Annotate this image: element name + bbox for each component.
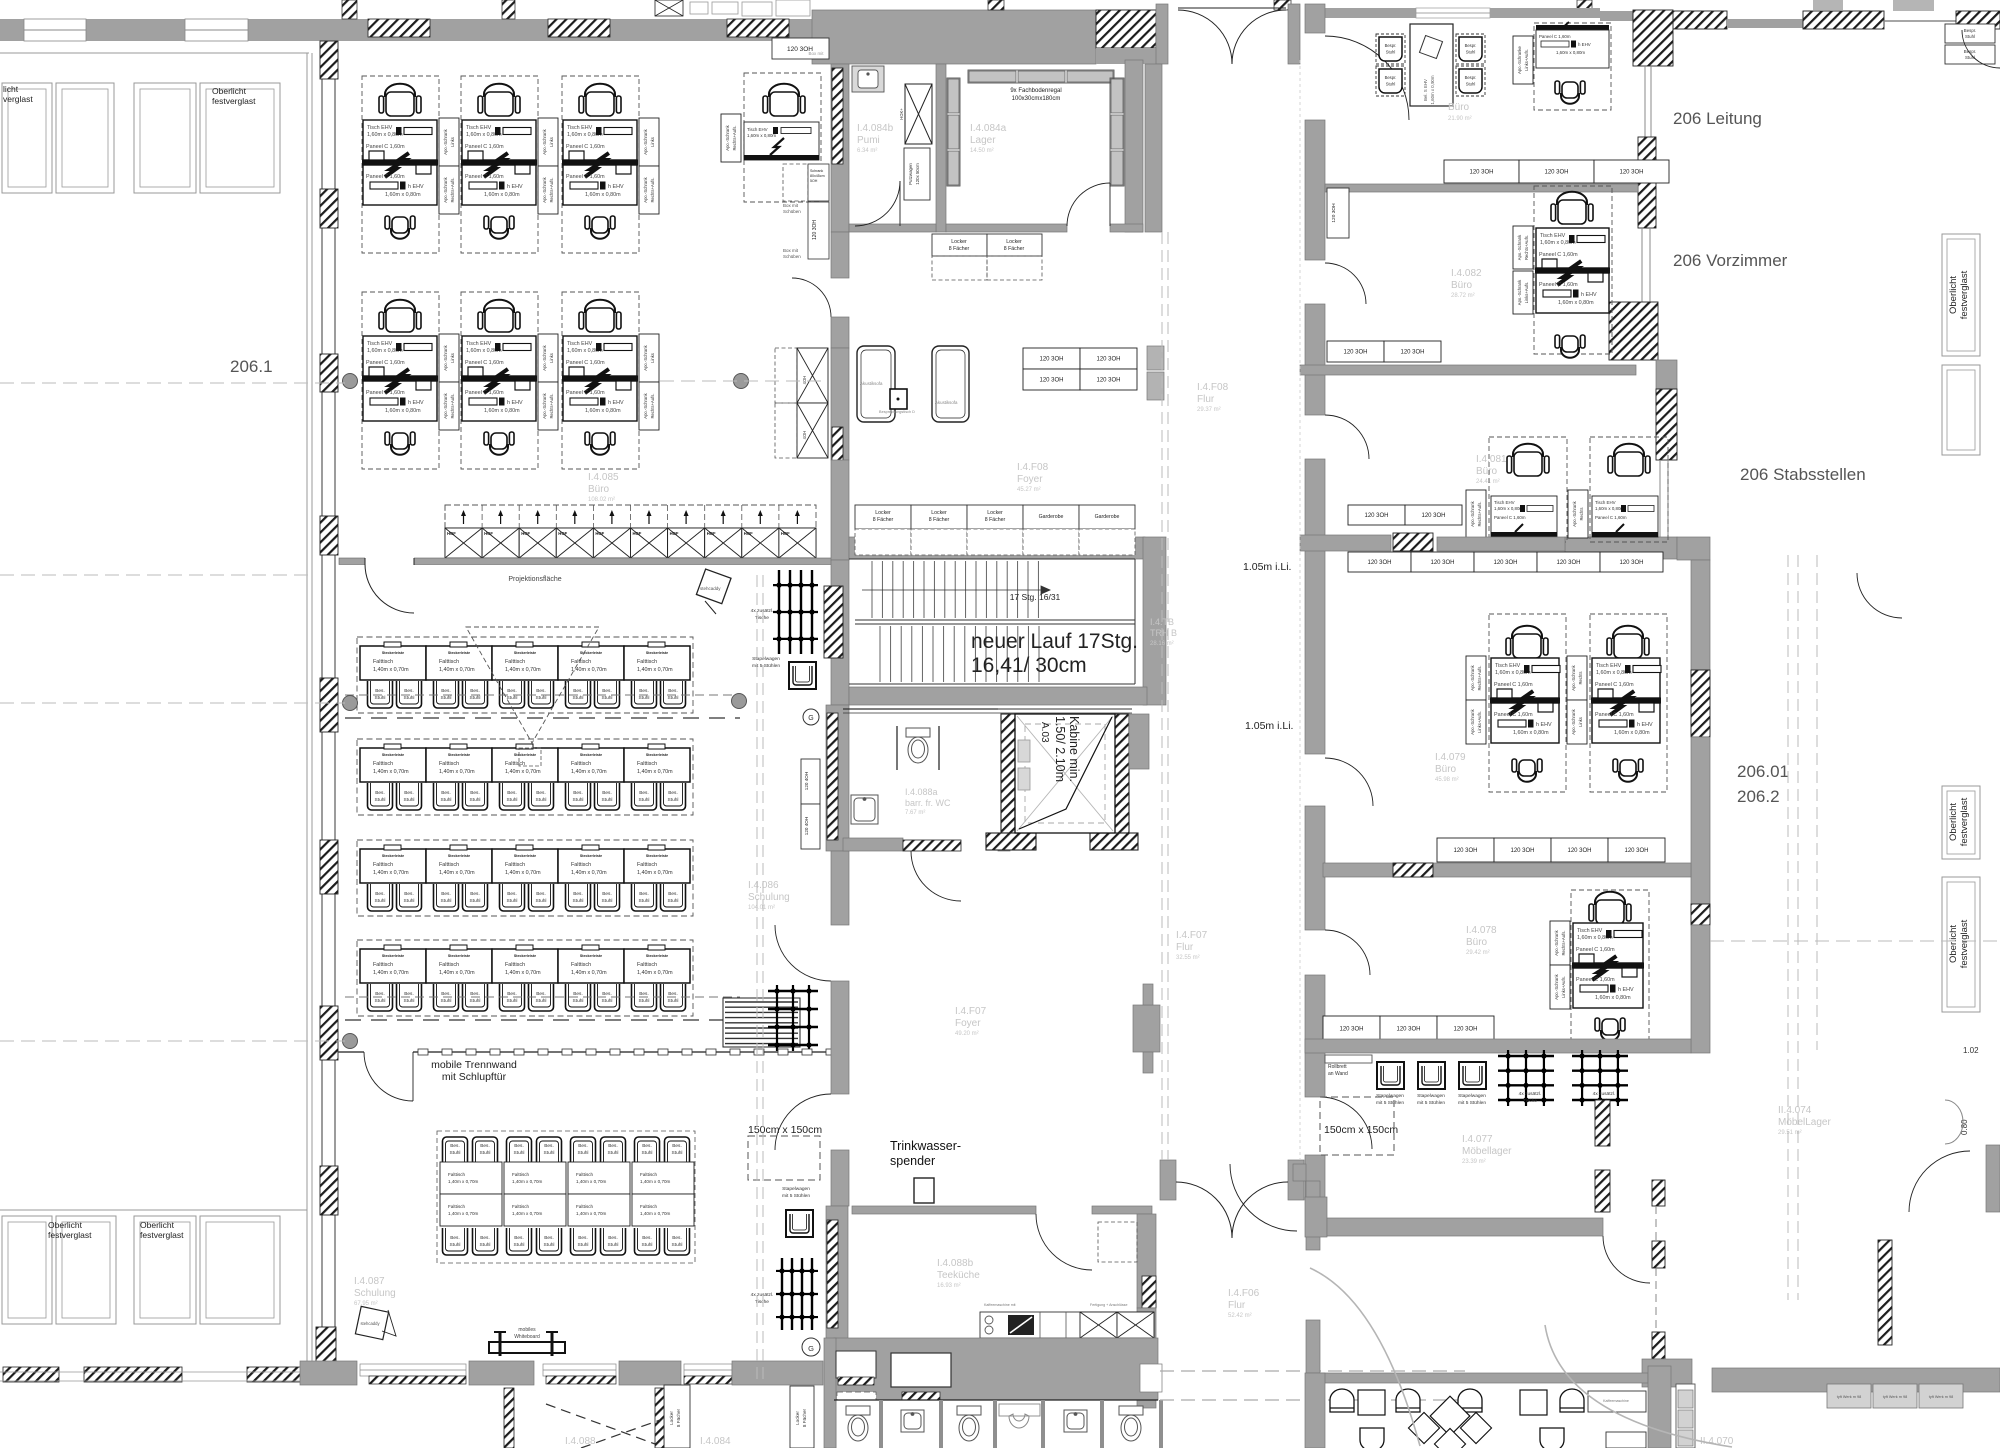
svg-text:Stuhl: Stuhl xyxy=(441,797,452,803)
svg-text:Stuhl: Stuhl xyxy=(672,1242,683,1248)
svg-text:Stuhl: Stuhl xyxy=(507,898,518,904)
svg-text:Akustiksofa: Akustiksofa xyxy=(860,381,883,386)
svg-text:Paneel C 1,60m: Paneel C 1,60m xyxy=(366,144,405,150)
svg-text:Stuhl: Stuhl xyxy=(536,695,547,701)
svg-text:Falttisch: Falttisch xyxy=(439,862,459,868)
svg-text:Apo.-Schrank: Apo.-Schrank xyxy=(1571,664,1576,690)
svg-text:mit 5 Stühlen: mit 5 Stühlen xyxy=(1376,1100,1404,1106)
svg-text:1,40m x 0,70m: 1,40m x 0,70m xyxy=(576,1179,607,1184)
svg-text:6.34 m²: 6.34 m² xyxy=(857,148,877,154)
svg-text:206 Leitung: 206 Leitung xyxy=(1673,109,1762,128)
svg-text:1,40m x 0,70m: 1,40m x 0,70m xyxy=(439,667,475,673)
svg-text:Rechts+Aufs.: Rechts+Aufs. xyxy=(1477,501,1482,526)
svg-text:Möbellager: Möbellager xyxy=(1462,1146,1512,1157)
svg-text:108.02 m²: 108.02 m² xyxy=(588,497,615,503)
svg-text:1.05m i.Li.: 1.05m i.Li. xyxy=(1245,720,1293,732)
svg-text:Links: Links xyxy=(1578,717,1583,727)
svg-text:Falttisch: Falttisch xyxy=(640,1204,658,1209)
svg-text:Steckerleiste: Steckerleiste xyxy=(580,854,602,858)
svg-text:8 Fächer: 8 Fächer xyxy=(929,517,950,523)
svg-text:h EHV: h EHV xyxy=(1618,987,1634,993)
svg-text:Bes.: Bes. xyxy=(544,1235,554,1241)
svg-text:120 3OH: 120 3OH xyxy=(1331,203,1337,223)
svg-text:120 3OH: 120 3OH xyxy=(1400,350,1424,356)
svg-text:28.72 m²: 28.72 m² xyxy=(1451,293,1475,299)
svg-text:Steckerleiste: Steckerleiste xyxy=(580,753,602,757)
svg-text:Stuhl: Stuhl xyxy=(441,998,452,1004)
svg-text:Falttisch: Falttisch xyxy=(637,862,657,868)
svg-text:Paneel C 1,60m: Paneel C 1,60m xyxy=(1576,947,1615,953)
svg-text:HOK+: HOK+ xyxy=(899,108,904,120)
svg-text:Stuhl: Stuhl xyxy=(480,1150,491,1156)
svg-text:Apo.-Schrank: Apo.-Schrank xyxy=(443,128,448,154)
svg-text:Flur: Flur xyxy=(1228,1300,1246,1311)
svg-text:Paneel C 1,60m: Paneel C 1,60m xyxy=(1595,515,1627,520)
svg-text:I.4.087: I.4.087 xyxy=(354,1276,385,1287)
svg-text:24.41 m²: 24.41 m² xyxy=(1476,479,1500,485)
svg-text:Rechts+Aufs.: Rechts+Aufs. xyxy=(549,177,554,202)
svg-text:stehcaddy: stehcaddy xyxy=(360,1321,380,1326)
svg-text:1,40m x 0,70m: 1,40m x 0,70m xyxy=(505,769,541,775)
svg-text:Rechts: Rechts xyxy=(1579,507,1584,520)
svg-text:Stuhl: Stuhl xyxy=(639,695,650,701)
svg-text:Stuhl: Stuhl xyxy=(507,797,518,803)
svg-text:1,40m x 0,70m: 1,40m x 0,70m xyxy=(576,1211,607,1216)
svg-text:Oberlicht: Oberlicht xyxy=(212,86,247,96)
svg-text:Bes.: Bes. xyxy=(668,891,678,897)
svg-text:49.20 m²: 49.20 m² xyxy=(955,1031,979,1037)
svg-text:Bes.: Bes. xyxy=(480,1143,490,1149)
svg-text:Apo.-Schrank: Apo.-Schrank xyxy=(1517,234,1522,260)
svg-text:Falttisch: Falttisch xyxy=(640,1172,658,1177)
svg-text:Besprechungstisch D: Besprechungstisch D xyxy=(879,410,915,414)
svg-text:4OH: 4OH xyxy=(802,431,807,440)
svg-text:Bes.: Bes. xyxy=(578,1143,588,1149)
svg-text:h EHV: h EHV xyxy=(507,400,523,406)
svg-text:Stuhl: Stuhl xyxy=(578,1242,589,1248)
svg-text:120 3OH: 120 3OH xyxy=(1421,513,1445,519)
svg-text:I.4.088b: I.4.088b xyxy=(937,1258,974,1269)
svg-text:1,40m x 0,70m: 1,40m x 0,70m xyxy=(439,870,475,876)
svg-text:Apo.-Schrank: Apo.-Schrank xyxy=(1470,664,1475,690)
svg-text:Bes.: Bes. xyxy=(672,1235,682,1241)
svg-text:Paneel C 1,60m: Paneel C 1,60m xyxy=(566,174,605,180)
svg-text:Stuhl: Stuhl xyxy=(375,898,386,904)
svg-text:Lager: Lager xyxy=(970,135,996,146)
svg-text:120 3OH: 120 3OH xyxy=(1096,378,1120,384)
svg-text:Pumi: Pumi xyxy=(857,135,880,146)
svg-text:Links: Links xyxy=(450,353,455,363)
svg-text:Rechts+Aufs.: Rechts+Aufs. xyxy=(1524,235,1529,260)
svg-text:Steckerleiste: Steckerleiste xyxy=(646,854,668,858)
svg-text:45.27 m²: 45.27 m² xyxy=(1017,487,1041,493)
svg-text:Tisch EHV: Tisch EHV xyxy=(1540,233,1566,239)
svg-text:1,40m x 0,70m: 1,40m x 0,70m xyxy=(571,667,607,673)
svg-text:Schulung: Schulung xyxy=(748,892,790,903)
svg-text:8 Fächer: 8 Fächer xyxy=(676,1408,681,1427)
svg-text:Bes.: Bes. xyxy=(441,891,451,897)
svg-text:Apo.-Schrank: Apo.-Schrank xyxy=(542,128,547,154)
svg-text:Falttisch: Falttisch xyxy=(637,761,657,767)
svg-text:I.4.F06: I.4.F06 xyxy=(1228,1288,1260,1299)
svg-text:Bes.: Bes. xyxy=(470,688,480,694)
svg-text:Stuhl: Stuhl xyxy=(639,898,650,904)
svg-text:120 3OH: 120 3OH xyxy=(1039,357,1063,363)
svg-text:1,60m x 0,80m: 1,60m x 0,80m xyxy=(585,192,621,198)
svg-text:Garderobe: Garderobe xyxy=(1039,514,1064,520)
svg-text:festverglast: festverglast xyxy=(48,1230,92,1240)
svg-text:h EHV: h EHV xyxy=(1536,722,1552,728)
svg-text:Stuhl: Stuhl xyxy=(668,797,679,803)
svg-text:Falttisch: Falttisch xyxy=(448,1204,466,1209)
svg-text:Falttisch: Falttisch xyxy=(448,1172,466,1177)
svg-text:Stuhl: Stuhl xyxy=(536,998,547,1004)
svg-text:8 Fächer: 8 Fächer xyxy=(1004,246,1025,252)
svg-text:h EHV: h EHV xyxy=(1578,42,1591,47)
svg-text:mobiles: mobiles xyxy=(518,1327,536,1333)
svg-text:II.4.074: II.4.074 xyxy=(1778,1105,1812,1116)
svg-text:120 3OH: 120 3OH xyxy=(1510,848,1534,854)
svg-text:Bes.: Bes. xyxy=(441,991,451,997)
svg-text:Büro: Büro xyxy=(1476,466,1498,477)
svg-text:Falttisch: Falttisch xyxy=(576,1204,594,1209)
svg-text:Steckerleiste: Steckerleiste xyxy=(514,954,536,958)
svg-text:1,60m x 0,80m: 1,60m x 0,80m xyxy=(385,408,421,414)
svg-text:1,40m x 0,70m: 1,40m x 0,70m xyxy=(571,970,607,976)
svg-text:Bes.: Bes. xyxy=(404,790,414,796)
svg-text:Büro: Büro xyxy=(588,484,610,495)
svg-text:Tisch EHV: Tisch EHV xyxy=(1495,663,1521,669)
svg-text:Steckerleiste: Steckerleiste xyxy=(646,651,668,655)
svg-text:Stuhl: Stuhl xyxy=(639,797,650,803)
svg-text:Garderobe: Garderobe xyxy=(1095,514,1120,520)
svg-text:Tisch EHV: Tisch EHV xyxy=(466,341,492,347)
svg-text:HOF: HOF xyxy=(744,531,753,536)
svg-text:Kaffeemaschine mit: Kaffeemaschine mit xyxy=(984,1303,1016,1307)
svg-text:HOF: HOF xyxy=(558,531,567,536)
svg-text:Tisch EHV: Tisch EHV xyxy=(1595,500,1616,505)
svg-text:Bes.: Bes. xyxy=(375,891,385,897)
svg-text:Apo.-Schrank: Apo.-Schrank xyxy=(542,392,547,418)
svg-text:Bes.: Bes. xyxy=(536,891,546,897)
svg-text:Paneel C 1,60m: Paneel C 1,60m xyxy=(465,144,504,150)
svg-text:Fertigung + Anschlüsse: Fertigung + Anschlüsse xyxy=(1090,1303,1127,1307)
svg-text:1,40m x 0,70m: 1,40m x 0,70m xyxy=(448,1179,479,1184)
svg-text:Stuhl: Stuhl xyxy=(578,1150,589,1156)
svg-text:Steckerleiste: Steckerleiste xyxy=(646,954,668,958)
svg-text:Stuhl: Stuhl xyxy=(470,898,481,904)
svg-text:Apo.-Schrank: Apo.-Schrank xyxy=(443,392,448,418)
svg-text:1,40m x 0,70m: 1,40m x 0,70m xyxy=(505,970,541,976)
svg-text:Paneel C 1,60m: Paneel C 1,60m xyxy=(566,390,605,396)
svg-text:Stapelwagen: Stapelwagen xyxy=(1417,1093,1445,1099)
svg-text:120 4OH: 120 4OH xyxy=(804,772,809,790)
svg-text:Steckerleiste: Steckerleiste xyxy=(448,753,470,757)
svg-text:1,40m x 0,70m: 1,40m x 0,70m xyxy=(571,769,607,775)
svg-text:Rechts+Aufs.: Rechts+Aufs. xyxy=(1561,930,1566,955)
svg-text:HOF: HOF xyxy=(670,531,679,536)
svg-text:Bes.: Bes. xyxy=(375,790,385,796)
svg-text:Schüben: Schüben xyxy=(783,209,801,214)
svg-text:Bes.: Bes. xyxy=(668,688,678,694)
svg-text:104.01 m²: 104.01 m² xyxy=(748,905,775,911)
svg-text:Stuhl: Stuhl xyxy=(375,998,386,1004)
svg-text:Bes.: Bes. xyxy=(602,891,612,897)
svg-text:Bes.: Bes. xyxy=(639,688,649,694)
svg-text:Tisch EHV: Tisch EHV xyxy=(567,125,593,131)
svg-text:Stuhl: Stuhl xyxy=(1965,34,1975,39)
svg-text:120 3OH: 120 3OH xyxy=(1544,170,1568,176)
svg-text:Stuhl: Stuhl xyxy=(672,1150,683,1156)
svg-text:Falttisch: Falttisch xyxy=(373,761,393,767)
svg-text:4x zusätzl.: 4x zusätzl. xyxy=(751,1292,774,1298)
svg-text:Apo.-Schrank: Apo.-Schrank xyxy=(1517,279,1522,305)
svg-text:HOF: HOF xyxy=(484,531,493,536)
svg-text:Falttisch: Falttisch xyxy=(439,761,459,767)
svg-text:Rechts+Aufs.: Rechts+Aufs. xyxy=(450,393,455,418)
svg-text:I.4.085: I.4.085 xyxy=(588,472,619,483)
svg-text:Stuhl: Stuhl xyxy=(450,1150,461,1156)
svg-text:Stuhl: Stuhl xyxy=(573,695,584,701)
svg-text:mit 5 Stühlen: mit 5 Stühlen xyxy=(752,663,780,669)
svg-text:1,60m x 0,80m: 1,60m x 0,80m xyxy=(1494,506,1523,511)
svg-text:Locker: Locker xyxy=(987,510,1003,516)
svg-text:Bes.: Bes. xyxy=(608,1143,618,1149)
svg-text:stehcaddy: stehcaddy xyxy=(700,586,721,591)
svg-text:Falttisch: Falttisch xyxy=(505,862,525,868)
svg-text:festverglast: festverglast xyxy=(1959,797,1970,846)
svg-text:150cm x 150cm: 150cm x 150cm xyxy=(1324,1124,1398,1136)
svg-text:120 3OH: 120 3OH xyxy=(1619,560,1643,566)
svg-text:mit 5 Stühlen: mit 5 Stühlen xyxy=(1417,1100,1445,1106)
svg-text:I.4.079: I.4.079 xyxy=(1435,752,1466,763)
svg-text:Stuhl: Stuhl xyxy=(1386,82,1396,87)
svg-text:Büro: Büro xyxy=(1451,280,1473,291)
svg-text:mit 5 Stühlen: mit 5 Stühlen xyxy=(1458,1100,1486,1106)
svg-text:Tisch EHV: Tisch EHV xyxy=(466,125,492,131)
svg-text:Stuhl: Stuhl xyxy=(404,898,415,904)
svg-text:1.50/ 2.10m: 1.50/ 2.10m xyxy=(1053,716,1067,782)
svg-text:Akustiksofa: Akustiksofa xyxy=(935,400,958,405)
svg-text:Stuhl: Stuhl xyxy=(642,1150,653,1156)
svg-text:spender: spender xyxy=(890,1154,935,1168)
svg-text:1.02: 1.02 xyxy=(1963,1046,1979,1055)
svg-text:Tisch EHV: Tisch EHV xyxy=(367,341,393,347)
svg-text:Bes.: Bes. xyxy=(668,790,678,796)
svg-text:32.55 m²: 32.55 m² xyxy=(1176,955,1200,961)
svg-text:206.2: 206.2 xyxy=(1737,787,1780,806)
svg-text:Stuhl: Stuhl xyxy=(668,998,679,1004)
svg-text:1,40m x 0,70m: 1,40m x 0,70m xyxy=(448,1211,479,1216)
svg-text:206 Vorzimmer: 206 Vorzimmer xyxy=(1673,251,1788,270)
svg-text:Rechts+Aufs.: Rechts+Aufs. xyxy=(650,177,655,202)
svg-text:16,41/ 30cm: 16,41/ 30cm xyxy=(971,654,1087,677)
svg-text:9x Fachbodenregal: 9x Fachbodenregal xyxy=(1010,88,1061,94)
svg-text:G: G xyxy=(808,715,813,722)
svg-text:Stuhl: Stuhl xyxy=(480,1242,491,1248)
svg-text:1,60m x 0,80m: 1,60m x 0,80m xyxy=(1614,730,1650,736)
svg-text:1,60m x 0,80m: 1,60m x 0,80m xyxy=(1595,506,1624,511)
svg-text:Stuhl: Stuhl xyxy=(441,695,452,701)
svg-text:Apo.-Schrank: Apo.-Schrank xyxy=(725,124,730,150)
svg-text:1,40m x 0,70m: 1,40m x 0,70m xyxy=(505,667,541,673)
svg-text:neuer Lauf 17Stg.: neuer Lauf 17Stg. xyxy=(971,630,1138,653)
svg-text:barr. fr. WC: barr. fr. WC xyxy=(905,798,951,808)
svg-text:Bes.: Bes. xyxy=(608,1235,618,1241)
svg-text:1,60m x 0,80m: 1,60m x 0,80m xyxy=(1513,730,1549,736)
svg-text:Stuhl: Stuhl xyxy=(404,695,415,701)
svg-text:h EHV: h EHV xyxy=(408,184,424,190)
svg-text:Links: Links xyxy=(549,137,554,147)
svg-text:23.39 m²: 23.39 m² xyxy=(1462,1159,1486,1165)
svg-text:Apo.-Schrank: Apo.-Schrank xyxy=(1571,708,1576,734)
svg-text:1,40m x 0,70m: 1,40m x 0,70m xyxy=(571,870,607,876)
svg-text:Stuhl: Stuhl xyxy=(514,1150,525,1156)
svg-text:1,40m x 0,70m: 1,40m x 0,70m xyxy=(512,1211,543,1216)
svg-text:Paneel C 1,60m: Paneel C 1,60m xyxy=(1494,682,1533,688)
svg-text:HOF: HOF xyxy=(707,531,716,536)
svg-text:Bes.: Bes. xyxy=(470,991,480,997)
svg-text:Apo.-Schrank: Apo.-Schrank xyxy=(443,344,448,370)
svg-text:8 Fächer: 8 Fächer xyxy=(802,1408,807,1427)
svg-text:21.90 m²: 21.90 m² xyxy=(1448,116,1472,122)
svg-text:I.4.084: I.4.084 xyxy=(700,1436,731,1447)
svg-text:tyft Werk m 98: tyft Werk m 98 xyxy=(1837,1395,1861,1399)
svg-text:licht: licht xyxy=(3,84,19,94)
svg-text:Falttisch: Falttisch xyxy=(571,962,591,968)
svg-text:16.93 m²: 16.93 m² xyxy=(937,1283,961,1289)
svg-text:Steckerleiste: Steckerleiste xyxy=(514,651,536,655)
svg-text:120 3OH: 120 3OH xyxy=(1039,378,1063,384)
svg-text:Tisch EHV: Tisch EHV xyxy=(747,127,768,132)
svg-text:Rechts: Rechts xyxy=(1578,671,1583,684)
svg-text:4x zusätzl.: 4x zusätzl. xyxy=(751,608,774,614)
svg-text:1,60m x 0,80m: 1,60m x 0,80m xyxy=(385,192,421,198)
svg-text:Tisch EHV: Tisch EHV xyxy=(367,125,393,131)
svg-text:Bes.: Bes. xyxy=(375,688,385,694)
svg-text:Stapelwagen: Stapelwagen xyxy=(752,656,780,662)
svg-text:Apo.-Schrank: Apo.-Schrank xyxy=(1470,708,1475,734)
svg-text:1,40m x 0,70m: 1,40m x 0,70m xyxy=(439,769,475,775)
svg-text:Falttisch: Falttisch xyxy=(512,1204,530,1209)
svg-text:Falttisch: Falttisch xyxy=(571,862,591,868)
svg-text:Paneel C 1,60m: Paneel C 1,60m xyxy=(1494,515,1526,520)
svg-text:Stuhl: Stuhl xyxy=(573,898,584,904)
svg-text:Paneel C 1,60m: Paneel C 1,60m xyxy=(1539,252,1578,258)
svg-text:verglast: verglast xyxy=(3,94,33,104)
svg-text:Links+Aufs.: Links+Aufs. xyxy=(1561,976,1566,998)
svg-text:Stuhl: Stuhl xyxy=(602,695,613,701)
svg-text:Paneel C 1,60m: Paneel C 1,60m xyxy=(1595,682,1634,688)
svg-text:Stuhl: Stuhl xyxy=(375,695,386,701)
svg-text:Steckerleiste: Steckerleiste xyxy=(448,854,470,858)
svg-text:1,40m x 0,70m: 1,40m x 0,70m xyxy=(373,970,409,976)
svg-text:Tisch EHV: Tisch EHV xyxy=(1596,663,1622,669)
svg-text:Bespr.: Bespr. xyxy=(1465,43,1477,48)
svg-text:Bes.: Bes. xyxy=(642,1143,652,1149)
svg-text:Links+Aufs.: Links+Aufs. xyxy=(1524,49,1529,71)
svg-text:Paneel C 1,60m: Paneel C 1,60m xyxy=(1576,977,1615,983)
svg-text:Bes.: Bes. xyxy=(573,891,583,897)
svg-text:Bes.: Bes. xyxy=(375,991,385,997)
svg-text:Rechts+Aufs.: Rechts+Aufs. xyxy=(1477,665,1482,690)
svg-text:Bes.: Bes. xyxy=(536,991,546,997)
svg-text:Falttisch: Falttisch xyxy=(505,659,525,665)
svg-text:Paneel C 1,60m: Paneel C 1,60m xyxy=(566,360,605,366)
svg-text:Steckerleiste: Steckerleiste xyxy=(580,954,602,958)
svg-text:Links: Links xyxy=(549,353,554,363)
svg-text:h EHV: h EHV xyxy=(608,184,624,190)
svg-text:Locker: Locker xyxy=(795,1411,800,1425)
svg-text:1,40m x 0,70m: 1,40m x 0,70m xyxy=(439,970,475,976)
svg-text:Trinkwasser-: Trinkwasser- xyxy=(890,1139,961,1153)
svg-text:Falttisch: Falttisch xyxy=(505,962,525,968)
svg-text:120 3OH: 120 3OH xyxy=(1619,170,1643,176)
svg-text:I.4.084a: I.4.084a xyxy=(970,123,1007,134)
svg-text:Falttisch: Falttisch xyxy=(439,962,459,968)
svg-text:Projektionsfläche: Projektionsfläche xyxy=(508,576,561,583)
svg-text:Apo.-Schrank: Apo.-Schrank xyxy=(542,176,547,202)
svg-text:1.05m i.Li.: 1.05m i.Li. xyxy=(1243,561,1291,573)
svg-text:Bes.: Bes. xyxy=(507,991,517,997)
svg-text:1,40m x 0,70m: 1,40m x 0,70m xyxy=(640,1179,671,1184)
svg-text:Falttisch: Falttisch xyxy=(637,659,657,665)
svg-text:h EHV: h EHV xyxy=(507,184,523,190)
svg-text:Links: Links xyxy=(450,137,455,147)
svg-text:I.4.077: I.4.077 xyxy=(1462,1134,1493,1145)
svg-text:120 3OH: 120 3OH xyxy=(1469,170,1493,176)
svg-text:Bes.: Bes. xyxy=(536,688,546,694)
svg-text:Stuhl: Stuhl xyxy=(450,1242,461,1248)
svg-text:Flur: Flur xyxy=(1176,942,1194,953)
svg-text:Stuhl: Stuhl xyxy=(544,1150,555,1156)
svg-text:206 Stabsstellen: 206 Stabsstellen xyxy=(1740,465,1866,484)
svg-text:Büro: Büro xyxy=(1448,102,1470,113)
svg-text:Bespr.: Bespr. xyxy=(1385,75,1397,80)
svg-text:120 3OH: 120 3OH xyxy=(1339,1027,1363,1033)
svg-text:1,60m x 0,80m: 1,60m x 0,80m xyxy=(1595,995,1631,1001)
svg-text:Bes.: Bes. xyxy=(639,891,649,897)
svg-text:Bes.: Bes. xyxy=(507,688,517,694)
svg-text:Steckerleiste: Steckerleiste xyxy=(382,753,404,757)
svg-text:Bes.: Bes. xyxy=(602,688,612,694)
svg-text:120 3OH: 120 3OH xyxy=(1096,357,1120,363)
svg-text:Stuhl: Stuhl xyxy=(507,695,518,701)
svg-text:Stuhl: Stuhl xyxy=(470,695,481,701)
svg-text:Bes.: Bes. xyxy=(578,1235,588,1241)
svg-text:Oberlicht: Oberlicht xyxy=(140,1220,175,1230)
svg-text:Locker: Locker xyxy=(931,510,947,516)
svg-text:120 3OH: 120 3OH xyxy=(1453,848,1477,854)
svg-text:Bes.: Bes. xyxy=(470,891,480,897)
svg-text:Stuhl: Stuhl xyxy=(544,1242,555,1248)
svg-text:Bes.: Bes. xyxy=(544,1143,554,1149)
svg-text:Stuhl: Stuhl xyxy=(608,1242,619,1248)
svg-text:1,40m x 0,70m: 1,40m x 0,70m xyxy=(637,970,673,976)
svg-text:Bes.: Bes. xyxy=(514,1235,524,1241)
svg-text:Paneel C 1,60m: Paneel C 1,60m xyxy=(366,174,405,180)
svg-text:Falttisch: Falttisch xyxy=(439,659,459,665)
svg-text:52.42 m²: 52.42 m² xyxy=(1228,1313,1252,1319)
svg-text:Apo.-Schrank: Apo.-Schrank xyxy=(643,392,648,418)
svg-text:Falttisch: Falttisch xyxy=(373,962,393,968)
svg-text:Bes.: Bes. xyxy=(450,1235,460,1241)
svg-text:I.4.F07: I.4.F07 xyxy=(955,1006,987,1017)
svg-text:Locker: Locker xyxy=(951,239,967,245)
svg-text:Locker: Locker xyxy=(1006,239,1022,245)
svg-text:Steckerleiste: Steckerleiste xyxy=(382,854,404,858)
svg-text:Stuhl: Stuhl xyxy=(573,998,584,1004)
